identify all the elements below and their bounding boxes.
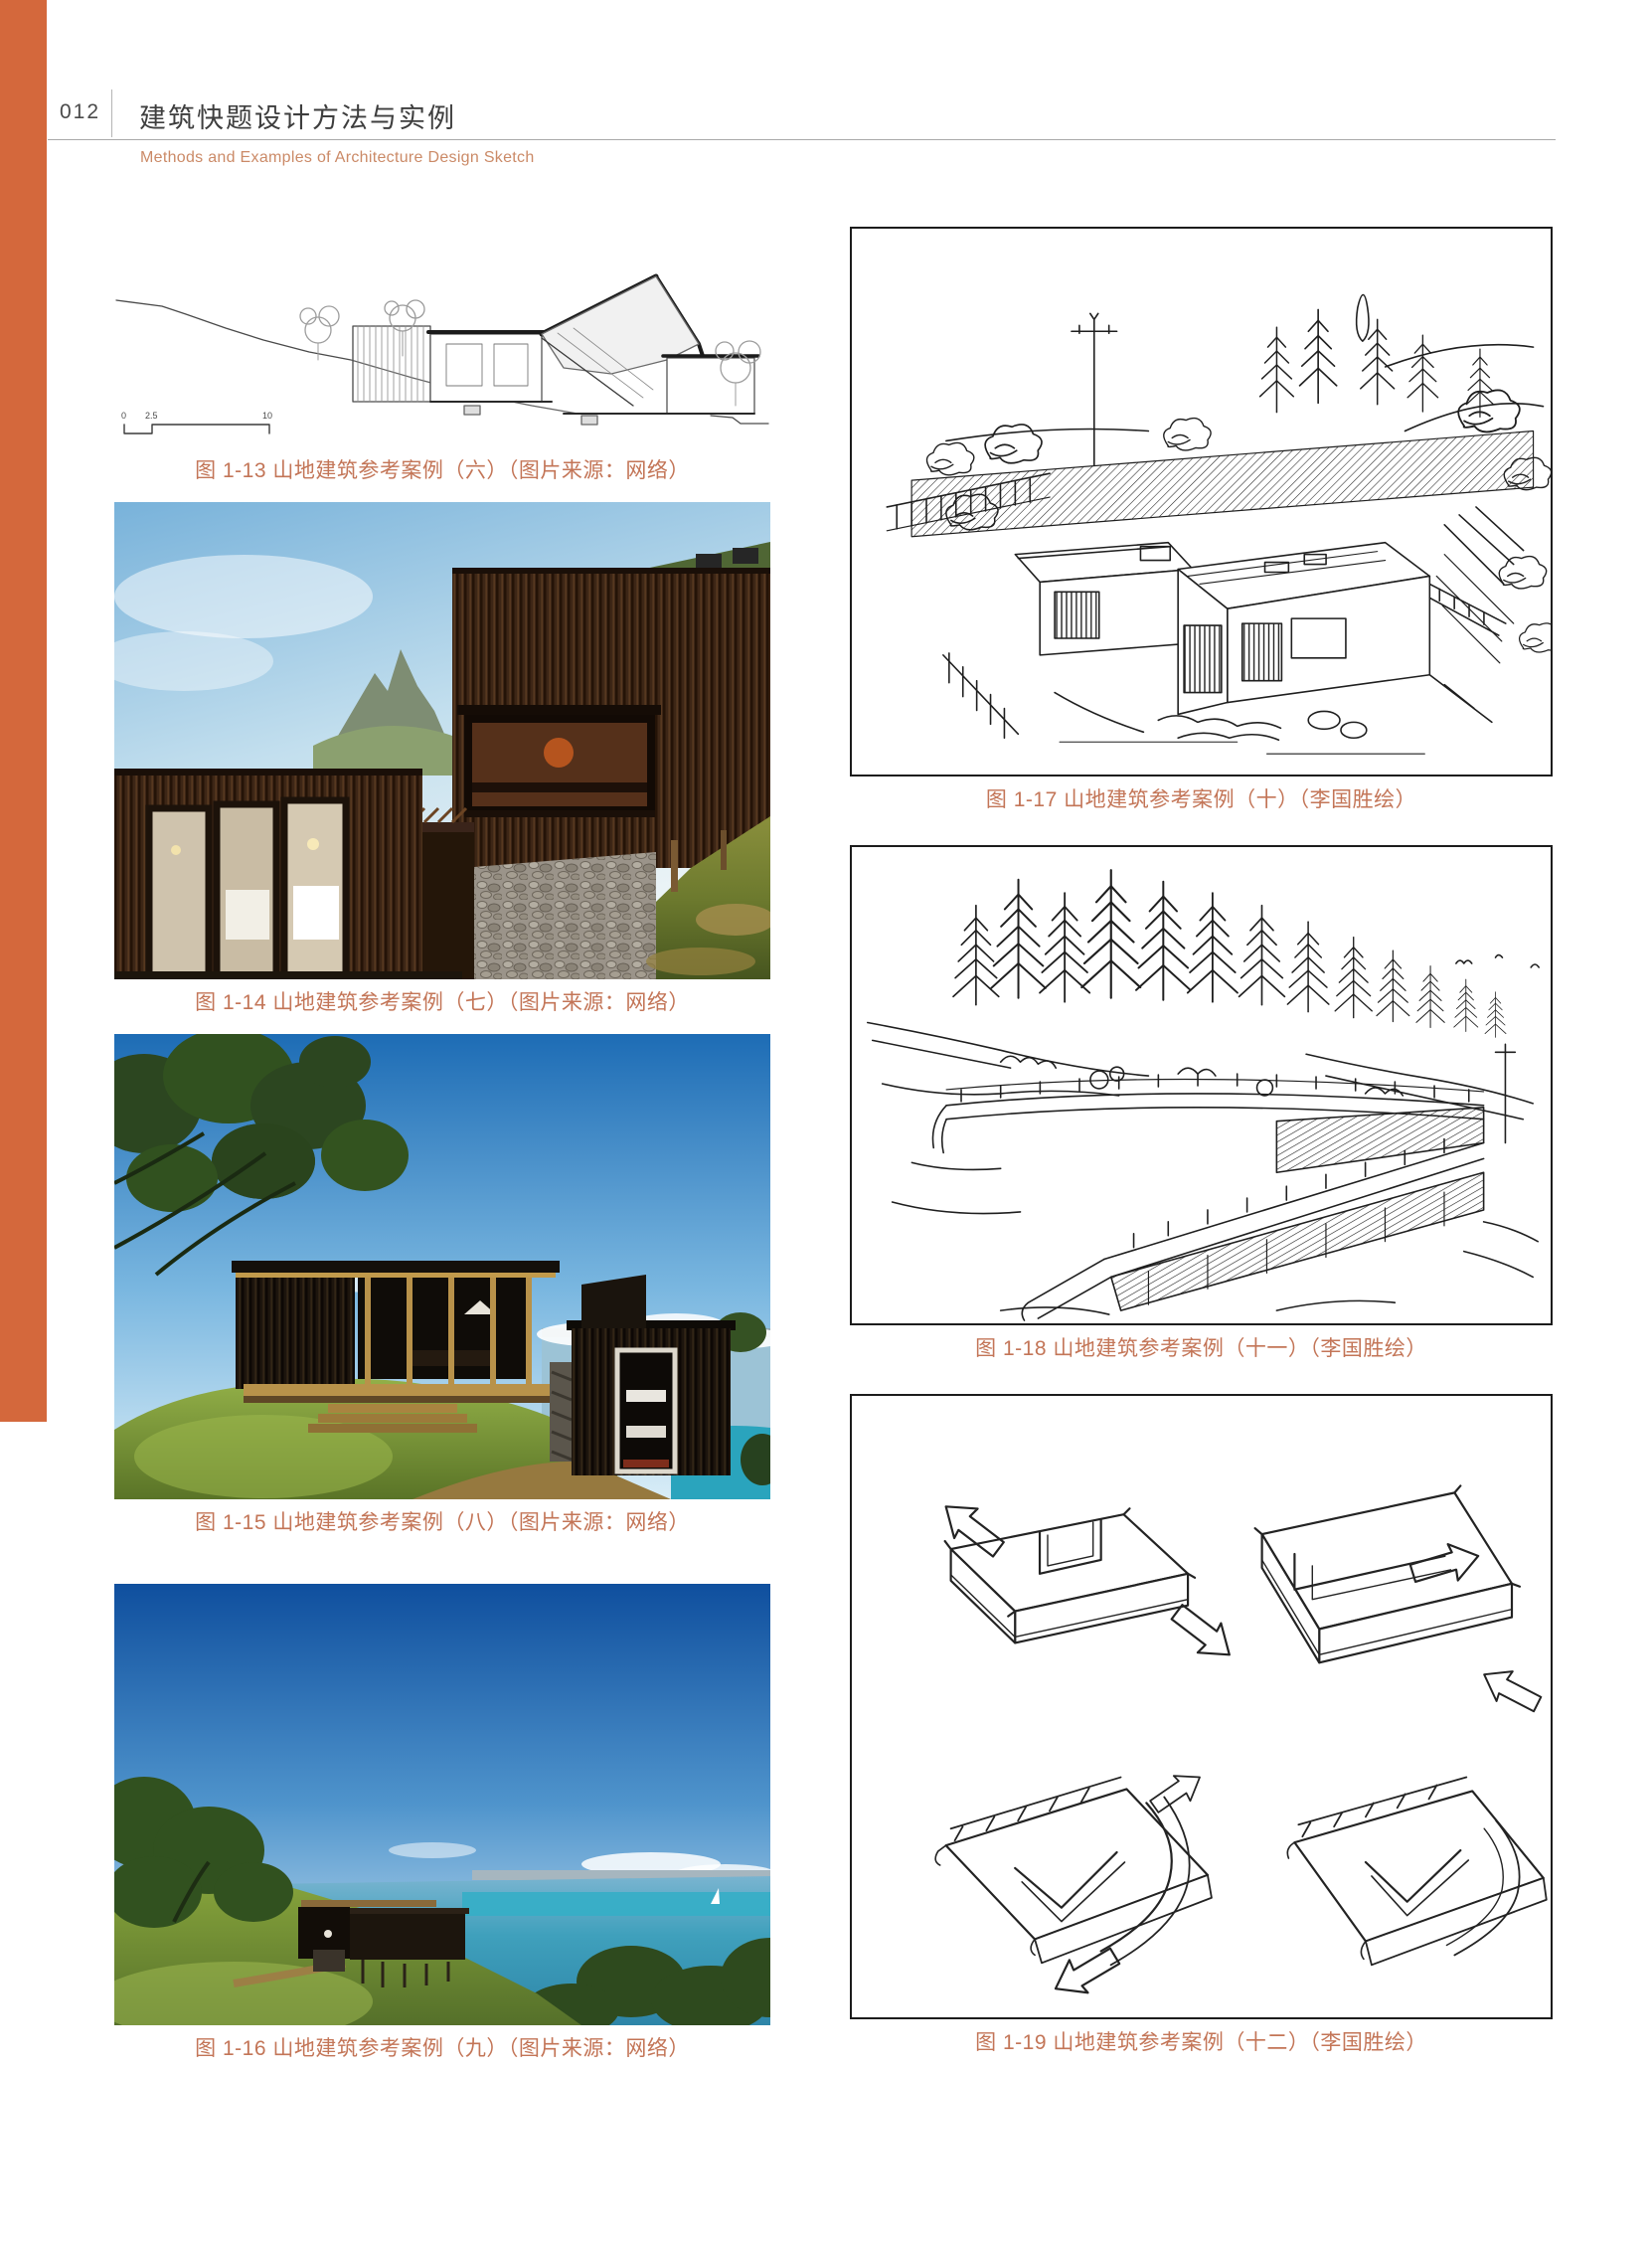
sketch-image <box>850 227 1553 776</box>
figure-caption: 图 1-14 山地建筑参考案例（七）（图片来源：网络） <box>114 986 770 1016</box>
sketch-svg <box>852 847 1551 1323</box>
book-title-en: Methods and Examples of Architecture Des… <box>140 149 535 167</box>
header-rule <box>48 139 1556 140</box>
scale-label-10: 10 <box>262 411 272 421</box>
figure-caption: 图 1-19 山地建筑参考案例（十二）（李国胜绘） <box>850 2026 1553 2056</box>
photo-svg <box>114 1584 770 2025</box>
figure-caption: 图 1-16 山地建筑参考案例（九）（图片来源：网络） <box>114 2032 770 2062</box>
sketch-image <box>850 845 1553 1325</box>
sketch-image <box>850 1394 1553 2019</box>
scale-label-2-5: 2.5 <box>145 411 158 421</box>
figure-caption: 图 1-13 山地建筑参考案例（六）（图片来源：网络） <box>114 454 770 484</box>
section-drawing-svg: 0 2.5 10 <box>114 249 770 447</box>
figure-1-15: 图 1-15 山地建筑参考案例（八）（图片来源：网络） <box>114 1034 770 1536</box>
section-drawing-image: 0 2.5 10 <box>114 249 770 447</box>
figure-1-19: 图 1-19 山地建筑参考案例（十二）（李国胜绘） <box>850 1394 1553 2056</box>
figure-caption: 图 1-18 山地建筑参考案例（十一）（李国胜绘） <box>850 1332 1553 1362</box>
photo-image <box>114 1584 770 2025</box>
sketch-svg <box>852 1396 1551 2017</box>
book-title-zh: 建筑快题设计方法与实例 <box>139 96 456 135</box>
chapter-accent-bar <box>0 0 47 1422</box>
page-number: 012 <box>60 100 100 124</box>
figure-caption: 图 1-17 山地建筑参考案例（十）（李国胜绘） <box>850 783 1553 813</box>
book-page: 012 建筑快题设计方法与实例 Methods and Examples of … <box>0 0 1652 2243</box>
figure-1-17: 图 1-17 山地建筑参考案例（十）（李国胜绘） <box>850 227 1553 813</box>
photo-image <box>114 502 770 979</box>
photo-image <box>114 1034 770 1499</box>
figure-1-16: 图 1-16 山地建筑参考案例（九）（图片来源：网络） <box>114 1584 770 2062</box>
photo-svg <box>114 502 770 979</box>
photo-svg <box>114 1034 770 1499</box>
header-divider <box>111 89 112 137</box>
sketch-svg <box>852 229 1551 775</box>
figure-caption: 图 1-15 山地建筑参考案例（八）（图片来源：网络） <box>114 1506 770 1536</box>
scale-label-0: 0 <box>121 411 126 421</box>
figure-1-13: 0 2.5 10 图 1-13 山地建筑参考案例（六）（图片来源：网络） <box>114 249 770 484</box>
figure-1-14: 图 1-14 山地建筑参考案例（七）（图片来源：网络） <box>114 502 770 1016</box>
figure-1-18: 图 1-18 山地建筑参考案例（十一）（李国胜绘） <box>850 845 1553 1362</box>
